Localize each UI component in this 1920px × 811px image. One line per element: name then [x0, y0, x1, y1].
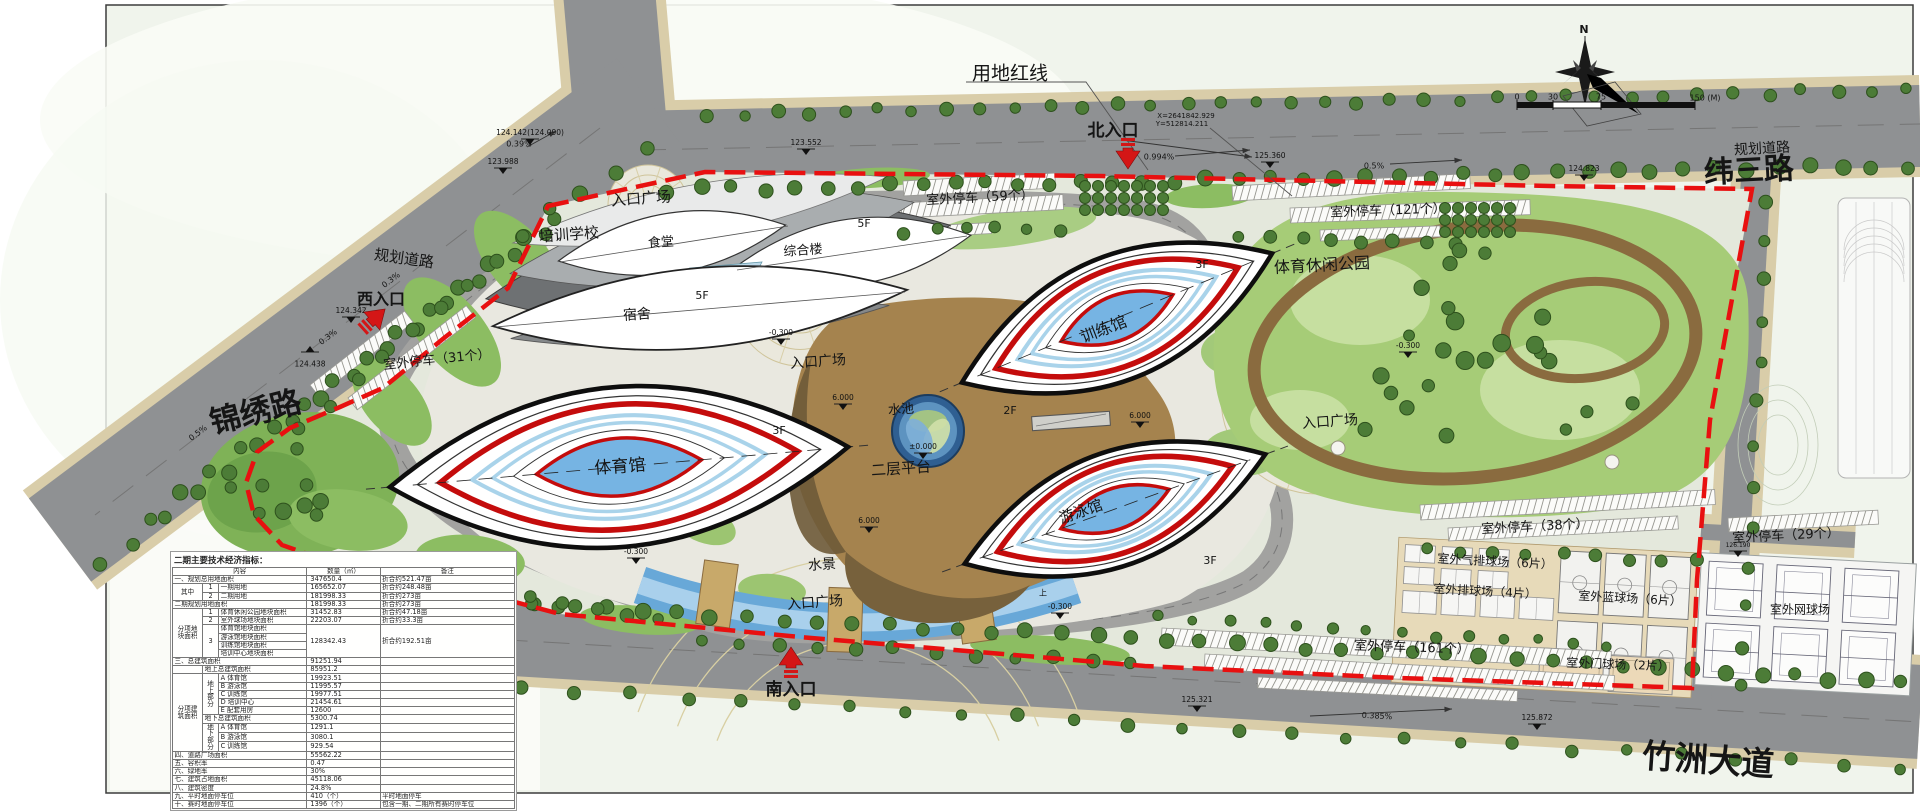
table-cell	[380, 666, 514, 674]
indicators-grid: 内容数量（㎡）备注一、规划总用地面积347650.4折合约521.47亩其中1一…	[172, 567, 515, 809]
table-cell: 地下部分	[203, 723, 219, 751]
slope-south: 0.385%	[1362, 711, 1393, 722]
table-cell: 五、容积率	[173, 759, 307, 767]
table-cell: 训练馆地块面积	[219, 641, 307, 649]
floor-5f-complex: 5F	[857, 217, 870, 230]
elevation-value: 124.142(124.090)	[496, 128, 564, 137]
table-cell: 六、绿地率	[173, 768, 307, 776]
table-cell: 三、总建筑面积	[173, 658, 307, 666]
table-cell: 11995.57	[307, 682, 380, 690]
table-cell: 地下总建筑面积	[203, 715, 307, 723]
table-cell: 平时地面停车	[380, 792, 514, 800]
table-cell: 45118.06	[307, 776, 380, 784]
table-cell	[380, 707, 514, 715]
table-cell: C 训练馆	[219, 690, 307, 698]
elevation-value: 125.360	[1254, 151, 1285, 160]
table-cell: 19923.51	[307, 674, 380, 682]
table-cell: 地上总建筑面积	[203, 666, 307, 674]
table-cell: 折合约248.48亩	[380, 584, 514, 592]
table-cell: 折合约192.51亩	[380, 625, 514, 658]
table-cell: 折合约273亩	[380, 592, 514, 600]
elevation-value: 123.988	[487, 157, 518, 166]
table-cell: 347650.4	[307, 576, 380, 584]
table-cell: D 培训中心	[219, 699, 307, 707]
floor-3f-training: 3F	[1195, 258, 1208, 271]
table-cell: 91251.94	[307, 658, 380, 666]
table-cell: 19977.51	[307, 690, 380, 698]
elevation-value: 6.000	[1129, 411, 1151, 420]
table-cell: B 游泳馆	[219, 732, 307, 741]
compass-n-label: N	[1579, 23, 1588, 36]
west-entrance-label: 西入口	[357, 290, 405, 309]
table-cell: 室外球场地块面积	[219, 617, 307, 625]
table-cell: 128342.43	[307, 625, 380, 658]
road-planned-ne: 规划道路	[1734, 140, 1791, 159]
elevation-value: 6.000	[832, 393, 854, 402]
table-cell	[380, 674, 514, 682]
table-cell: 85951.2	[307, 666, 380, 674]
table-cell	[380, 742, 514, 751]
elevation-value: -0.300	[1396, 341, 1420, 350]
scale-tick-75: 75	[1596, 93, 1606, 102]
table-cell: 数量（㎡）	[307, 568, 380, 576]
elevation-value: -0.300	[624, 547, 648, 556]
table-cell	[380, 715, 514, 723]
table-cell: C 训练馆	[219, 742, 307, 751]
elevation-value: ±0.000	[909, 442, 937, 451]
table-cell: 折合约47.18亩	[380, 608, 514, 616]
technical-indicators-table: 二期主要技术经济指标： 内容数量（㎡）备注一、规划总用地面积347650.4折合…	[170, 551, 517, 811]
stair-up-mark: 上	[1039, 589, 1047, 598]
scale-tick-30: 30	[1548, 93, 1558, 102]
table-cell: 培训中心地块面积	[219, 649, 307, 657]
table-cell: 分项地块面积	[173, 608, 203, 657]
table-cell: 1396（个）	[307, 800, 380, 808]
table-cell	[380, 682, 514, 690]
floor-2f-platform: 2F	[1003, 404, 1016, 417]
table-cell: 165652.07	[307, 584, 380, 592]
table-cell	[380, 784, 514, 792]
dormitory-label: 宿舍	[622, 305, 651, 324]
table-cell: A 体育馆	[219, 723, 307, 732]
table-cell: 181998.33	[307, 592, 380, 600]
table-cell: 1	[203, 584, 219, 592]
table-cell: 二期规划用地面积	[173, 600, 307, 608]
elevation-value: 125.872	[1521, 713, 1552, 722]
table-cell: A 体育馆	[219, 674, 307, 682]
table-cell: 一、规划总用地面积	[173, 576, 307, 584]
table-cell: 22203.07	[307, 617, 380, 625]
table-cell: 体育馆地块面积	[219, 625, 307, 633]
table-cell	[380, 699, 514, 707]
table-cell	[380, 690, 514, 698]
table-cell	[380, 751, 514, 759]
slope-top-east: 0.5%	[1364, 162, 1385, 171]
table-cell: 0.47	[307, 759, 380, 767]
south-entrance-label: 南入口	[766, 679, 817, 700]
elevation-value: 123.552	[790, 138, 821, 147]
table-cell: B 游泳馆	[219, 682, 307, 690]
table-cell	[380, 759, 514, 767]
scale-tick-0: 0	[1514, 93, 1519, 102]
north-entrance-label: 北入口	[1088, 121, 1139, 141]
table-cell	[380, 776, 514, 784]
complex-building-label: 综合楼	[783, 242, 823, 260]
tennis-label: 室外网球场	[1770, 602, 1830, 617]
table-cell: 5300.74	[307, 715, 380, 723]
table-cell	[380, 732, 514, 741]
table-cell: 七、建筑占地面积	[173, 776, 307, 784]
coordinate-x: X=2641842.929	[1157, 112, 1214, 120]
table-cell	[380, 768, 514, 776]
table-cell: 929.54	[307, 742, 380, 751]
table-cell: 地上部分	[203, 674, 219, 715]
plan-sheet: 124.142(124.090)123.988123.552125.360124…	[0, 0, 1920, 811]
elevation-value: 124.438	[294, 360, 325, 369]
table-cell: 二期用地	[219, 592, 307, 600]
table-cell: 折合约33.3亩	[380, 617, 514, 625]
table-cell: E 配套用房	[219, 707, 307, 715]
table-cell	[380, 658, 514, 666]
table-cell: 四、道路广场面积	[173, 751, 307, 759]
table-cell: 3080.1	[307, 732, 380, 741]
table-cell: 内容	[173, 568, 307, 576]
table-cell: 分项建筑面积	[173, 674, 203, 751]
table-cell: 其中	[173, 584, 203, 600]
floor-3f-gym: 3F	[772, 424, 785, 437]
table-cell	[173, 666, 203, 674]
table-cell: 410（个）	[307, 792, 380, 800]
table-cell: 八、建筑密度	[173, 784, 307, 792]
coordinate-y: Y=512814.211	[1155, 120, 1208, 128]
table-cell	[380, 723, 514, 732]
elevation-value: 6.000	[858, 516, 880, 525]
slope-north: 0.994%	[1144, 153, 1175, 162]
pool-label: 水池	[888, 402, 915, 419]
site-boundary-label: 用地红线	[972, 63, 1048, 85]
table-cell: 备注	[380, 568, 514, 576]
elevation-value: -0.300	[769, 328, 793, 337]
elevation-value: 124.823	[1568, 164, 1599, 173]
table-title: 二期主要技术经济指标：	[174, 554, 515, 566]
slope-topleft: 0.39%	[506, 140, 532, 149]
table-cell: 十、赛时地面停车位	[173, 800, 307, 808]
table-cell: 12600	[307, 707, 380, 715]
table-cell: 3	[203, 625, 219, 658]
waterscape-label: 水景	[807, 556, 836, 574]
table-cell: 24.8%	[307, 784, 380, 792]
table-cell: 折合约273亩	[380, 600, 514, 608]
table-cell: 游泳馆地块面积	[219, 633, 307, 641]
table-cell: 一期用地	[219, 584, 307, 592]
table-cell: 181998.33	[307, 600, 380, 608]
scale-tick-150: 150 (M)	[1690, 94, 1721, 103]
table-cell: 1291.1	[307, 723, 380, 732]
floor-3f-swim: 3F	[1203, 554, 1216, 567]
table-cell: 55562.22	[307, 751, 380, 759]
table-cell: 包含一期、二期所有赛时停车位	[380, 800, 514, 808]
table-cell: 21454.61	[307, 699, 380, 707]
gymnasium-label: 体育馆	[594, 455, 646, 479]
table-cell: 2	[203, 617, 219, 625]
canteen-label: 食堂	[647, 234, 674, 252]
table-cell: 体育休闲公园地块面积	[219, 608, 307, 616]
floor-5f-dorm: 5F	[695, 289, 708, 302]
table-cell: 30%	[307, 768, 380, 776]
elevation-value: 125.321	[1181, 695, 1212, 704]
table-cell: 折合约521.47亩	[380, 576, 514, 584]
elevation-value: -0.300	[1048, 602, 1072, 611]
table-cell: 2	[203, 592, 219, 600]
table-cell: 31452.83	[307, 608, 380, 616]
table-cell: 1	[203, 608, 219, 616]
table-cell: 九、平时地面停车位	[173, 792, 307, 800]
